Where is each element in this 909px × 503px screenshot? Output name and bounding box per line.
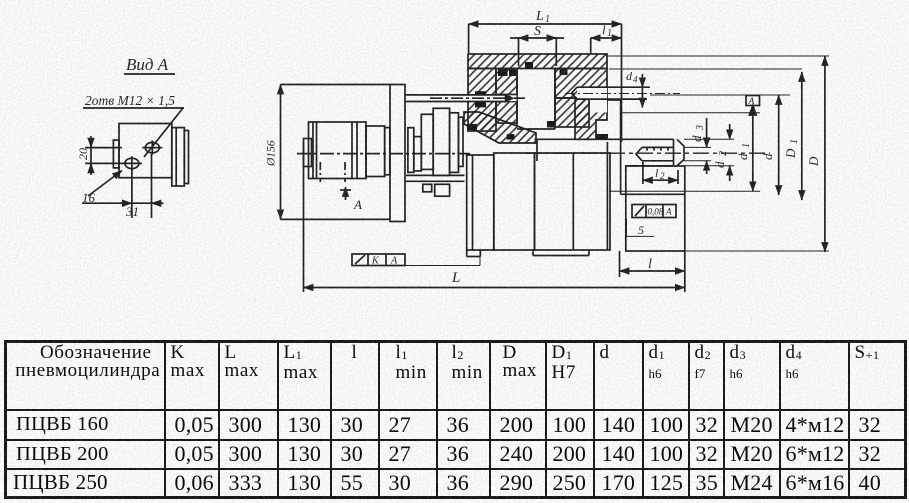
svg-text:1: 1 <box>607 28 612 39</box>
svg-text:d: d <box>712 161 727 168</box>
svg-text:L: L <box>535 9 544 24</box>
svg-text:3: 3 <box>695 125 706 131</box>
svg-text:l: l <box>655 166 659 180</box>
svg-text:1: 1 <box>545 14 550 25</box>
svg-text:d: d <box>735 153 750 160</box>
svg-text:А: А <box>665 207 672 217</box>
svg-text:2отв М12 × 1,5: 2отв М12 × 1,5 <box>85 93 175 108</box>
svg-text:31: 31 <box>125 204 139 219</box>
svg-text:D: D <box>783 148 798 159</box>
svg-text:l: l <box>602 22 606 37</box>
svg-text:2: 2 <box>660 171 665 181</box>
svg-text:1: 1 <box>741 143 752 148</box>
svg-text:L: L <box>451 270 460 286</box>
svg-text:А: А <box>390 256 398 267</box>
svg-text:d: d <box>689 135 704 142</box>
svg-text:Ø156: Ø156 <box>266 140 278 167</box>
svg-text:20: 20 <box>76 148 90 160</box>
svg-text:l: l <box>648 257 652 272</box>
svg-text:S: S <box>534 24 541 39</box>
svg-text:4: 4 <box>633 75 638 85</box>
svg-text:d: d <box>760 153 775 160</box>
svg-text:D: D <box>806 156 821 167</box>
svg-text:1: 1 <box>789 139 800 144</box>
svg-text:5: 5 <box>638 223 644 237</box>
svg-text:0,08: 0,08 <box>648 207 664 217</box>
svg-text:А: А <box>353 197 362 212</box>
svg-text:d: d <box>626 69 633 83</box>
svg-text:2: 2 <box>718 151 729 156</box>
svg-text:Вид А: Вид А <box>126 55 169 74</box>
